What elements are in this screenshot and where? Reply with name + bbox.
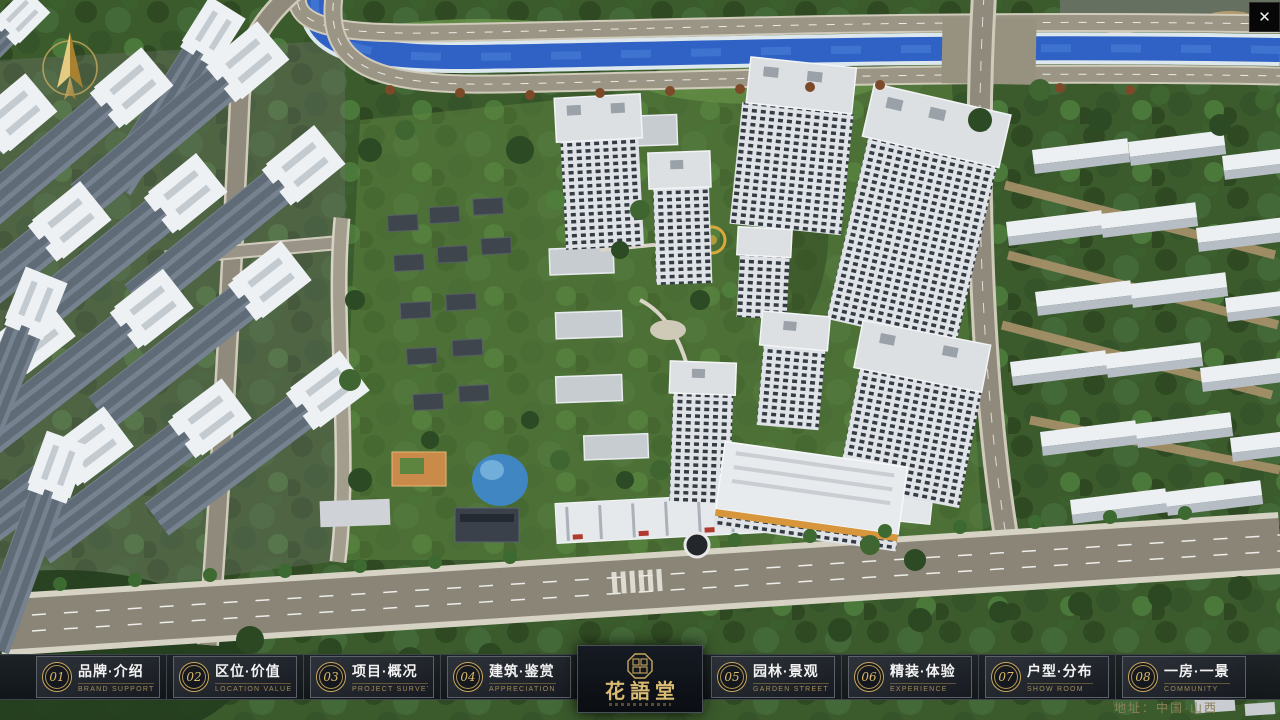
nav-badge: 06	[854, 662, 884, 692]
nav-label-zh: 项目·概况	[352, 661, 428, 681]
nav-item-interior[interactable]: 06 精装·体验 EXPERIENCE	[848, 656, 972, 698]
nav-label-en: PROJECT SURVEY	[352, 683, 428, 693]
nav-badge: 08	[1128, 662, 1158, 692]
nav-label-zh: 品牌·介绍	[78, 661, 154, 681]
nav-divider	[978, 654, 979, 700]
close-button[interactable]: ✕	[1249, 2, 1280, 32]
masterplan-viewer: ✕ 01 品牌·介绍 BRAND SUPPORT 02 区位·价值 LOCATI…	[0, 0, 1280, 720]
logo-tagline-decoration	[609, 703, 671, 706]
project-logo-panel[interactable]: 花語堂	[577, 645, 703, 713]
nav-divider	[1115, 654, 1116, 700]
nav-label-en: LOCATION VALUE	[215, 683, 291, 693]
nav-item-architecture[interactable]: 04 建筑·鉴赏 APPRECIATION	[447, 656, 571, 698]
nav-divider	[303, 654, 304, 700]
nav-label-zh: 一房·一景	[1164, 661, 1230, 681]
close-icon: ✕	[1258, 10, 1271, 25]
nav-label-zh: 园林·景观	[753, 661, 829, 681]
nav-divider	[440, 654, 441, 700]
nav-badge: 04	[453, 662, 483, 692]
project-logo-title: 花語堂	[600, 681, 680, 701]
nav-item-garden[interactable]: 05 园林·景观 GARDEN STREET	[711, 656, 835, 698]
nav-item-floorplans[interactable]: 07 户型·分布 SHOW ROOM	[985, 656, 1109, 698]
seal-icon	[627, 653, 653, 679]
nav-divider	[841, 654, 842, 700]
nav-label-en: APPRECIATION	[489, 683, 556, 693]
nav-label-zh: 户型·分布	[1027, 661, 1093, 681]
nav-item-views[interactable]: 08 一房·一景 COMMUNITY	[1122, 656, 1246, 698]
nav-label-en: EXPERIENCE	[890, 683, 956, 693]
nav-divider	[166, 654, 167, 700]
nav-group-right: 05 园林·景观 GARDEN STREET 06 精装·体验 EXPERIEN…	[711, 654, 1246, 700]
nav-item-brand[interactable]: 01 品牌·介绍 BRAND SUPPORT	[36, 656, 160, 698]
nav-badge: 01	[42, 662, 72, 692]
nav-badge: 02	[179, 662, 209, 692]
nav-badge: 05	[717, 662, 747, 692]
nav-label-en: COMMUNITY	[1164, 683, 1230, 693]
nav-item-project[interactable]: 03 项目·概况 PROJECT SURVEY	[310, 656, 434, 698]
masterplan-render	[0, 0, 1280, 720]
nav-badge: 03	[316, 662, 346, 692]
nav-label-en: SHOW ROOM	[1027, 683, 1093, 693]
compass-icon	[36, 26, 104, 106]
nav-item-location[interactable]: 02 区位·价值 LOCATION VALUE	[173, 656, 297, 698]
nav-label-en: GARDEN STREET	[753, 683, 829, 693]
nav-group-left: 01 品牌·介绍 BRAND SUPPORT 02 区位·价值 LOCATION…	[36, 654, 571, 700]
nav-label-zh: 精装·体验	[890, 661, 956, 681]
nav-badge: 07	[991, 662, 1021, 692]
nav-label-zh: 区位·价值	[215, 661, 291, 681]
project-address: 地址：中国·山西	[1114, 699, 1218, 716]
nav-label-zh: 建筑·鉴赏	[489, 661, 556, 681]
nav-label-en: BRAND SUPPORT	[78, 683, 154, 693]
